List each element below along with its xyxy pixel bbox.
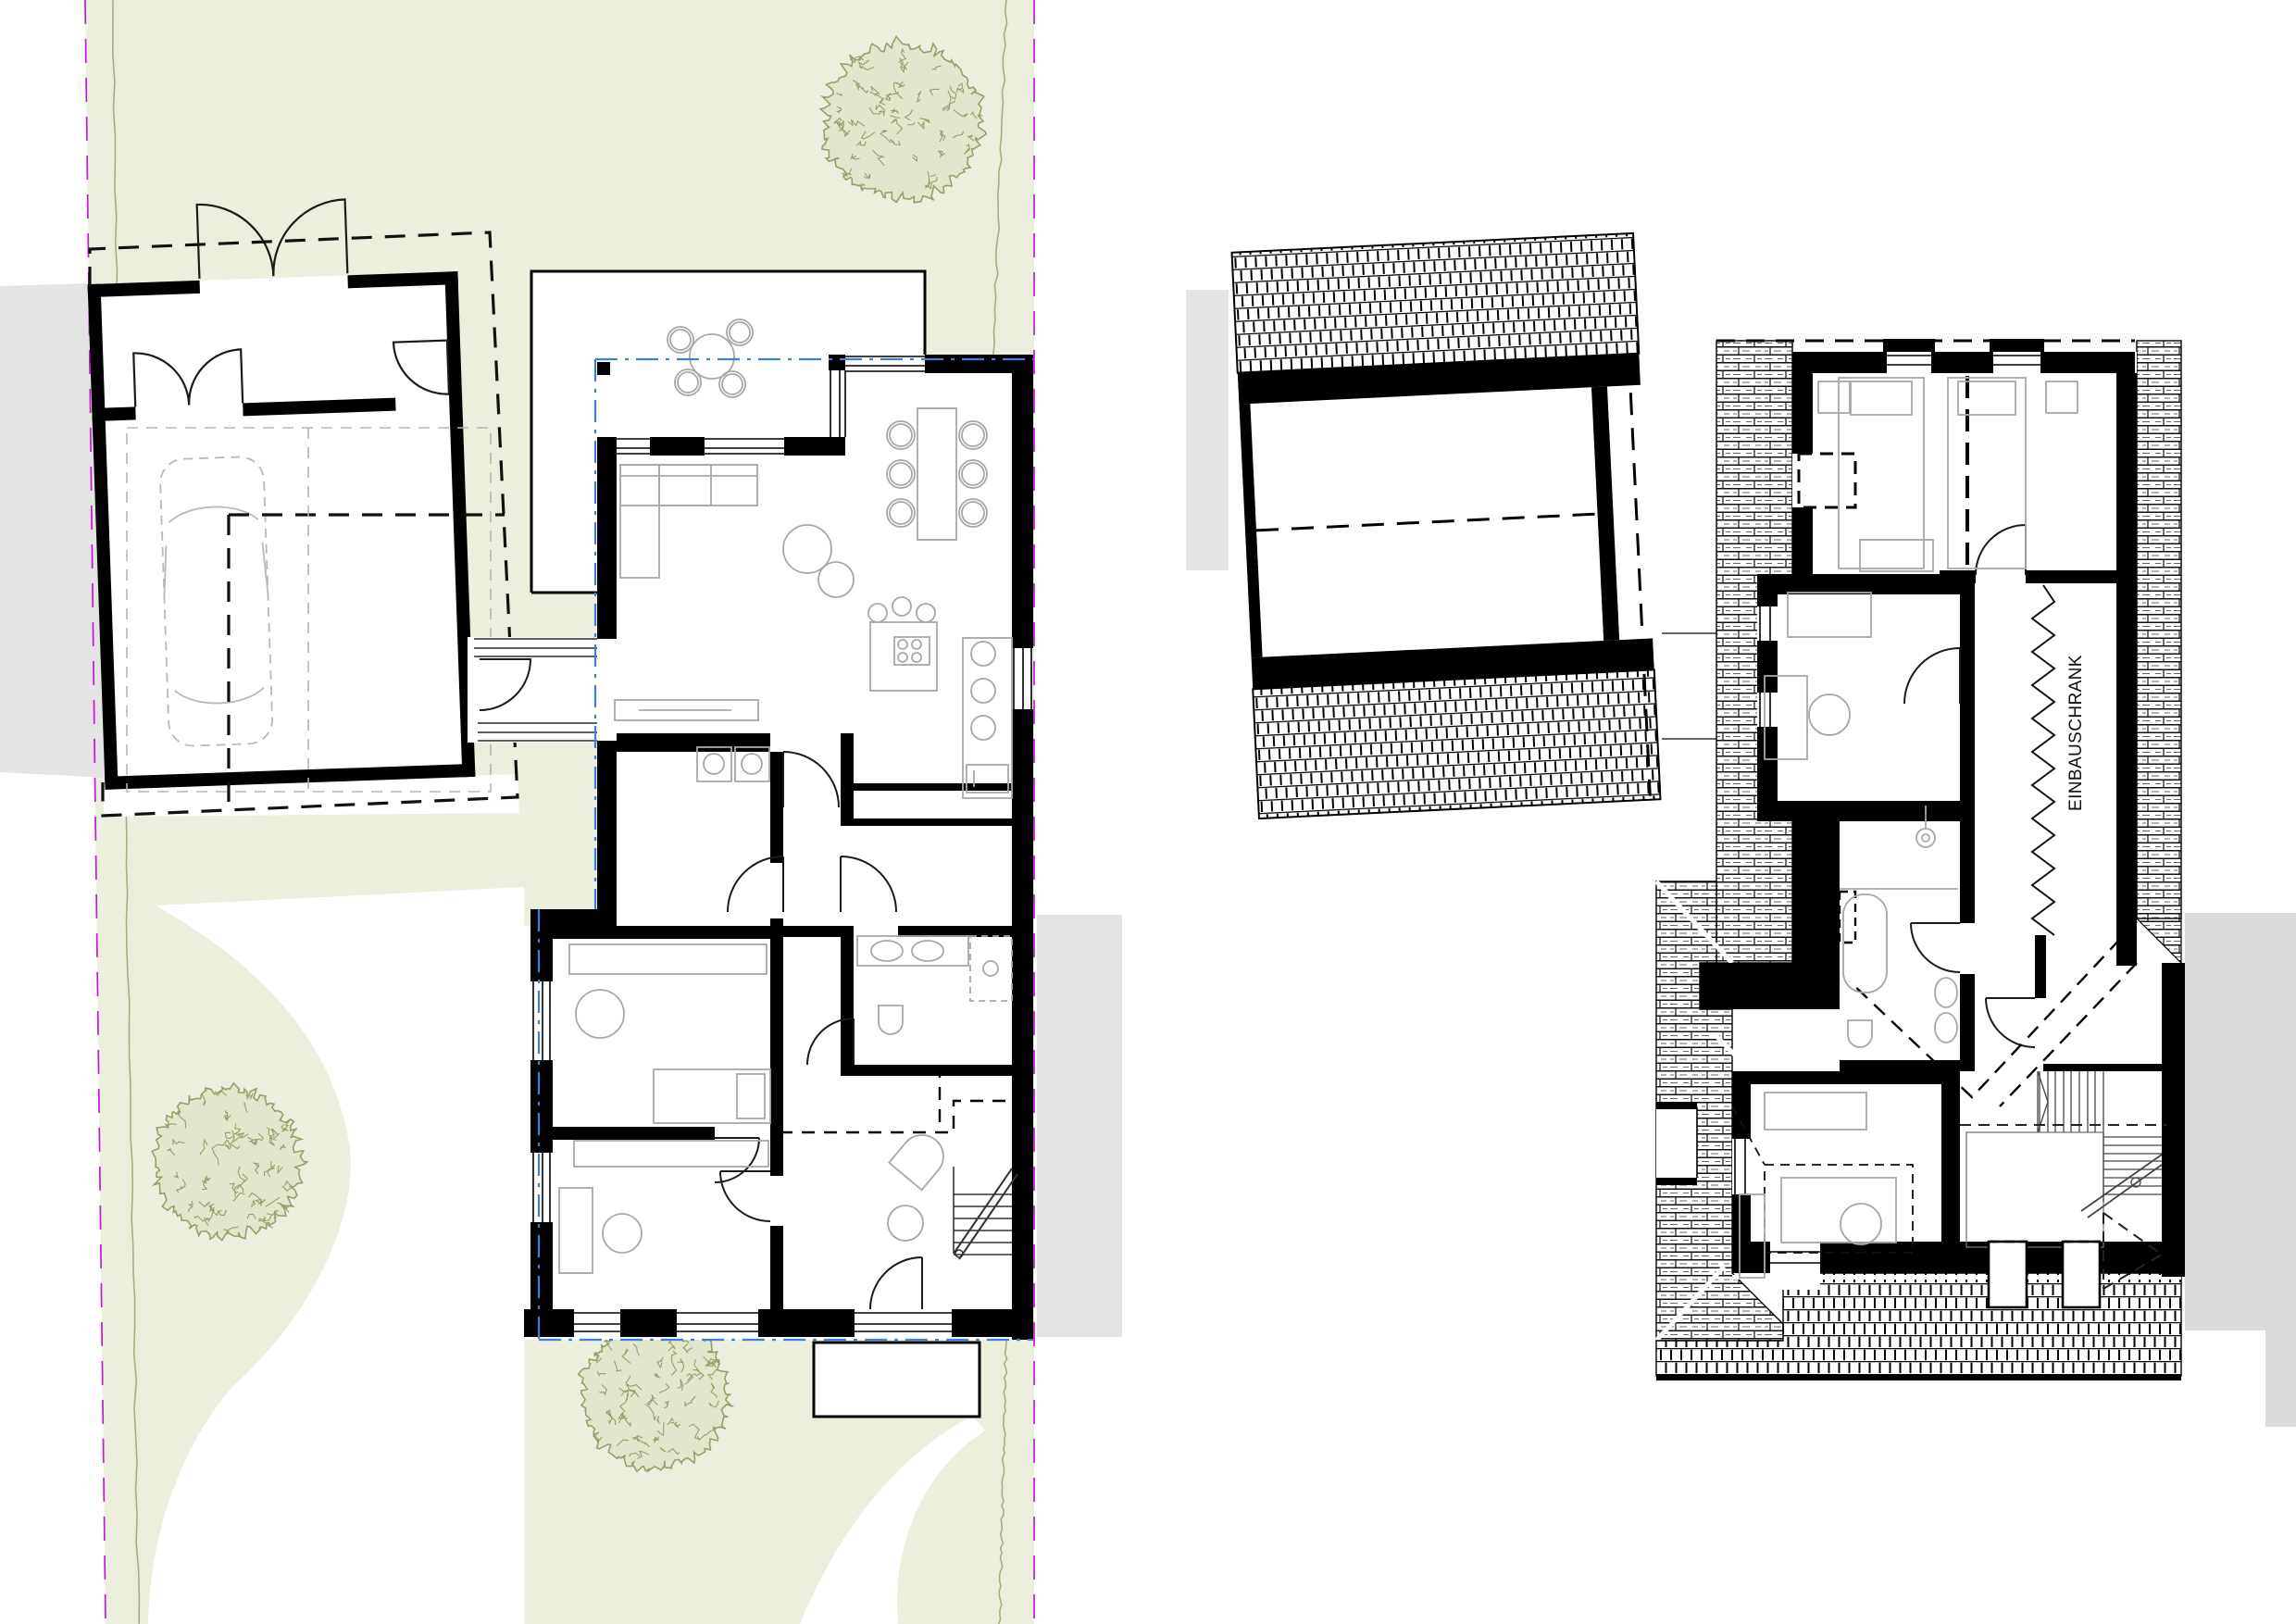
svg-text:EINBAUSCHRANK: EINBAUSCHRANK xyxy=(2066,655,2086,811)
